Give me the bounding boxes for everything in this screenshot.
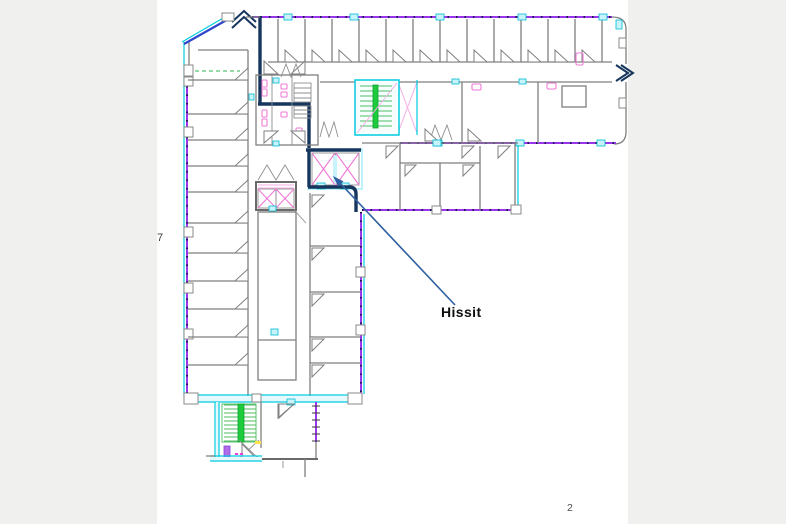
- door-swing-icon: [386, 146, 510, 176]
- shaft-cross: [398, 80, 417, 135]
- page-number: 2: [567, 502, 573, 514]
- fixture-icon: [547, 83, 556, 89]
- annotation-arrow: [333, 176, 455, 305]
- elevator-room: [308, 149, 362, 189]
- stray-mark: 7: [157, 232, 163, 244]
- door-swing-icon: [235, 68, 248, 365]
- door-swing-icon: [242, 444, 254, 456]
- elevator-block-2: [256, 165, 306, 223]
- exit-chevron-icon: [616, 65, 633, 81]
- door-swing-icon: [312, 195, 324, 377]
- entrance-chevron-icon: [232, 11, 256, 28]
- middle-band: [362, 140, 521, 214]
- fixture-icon: [472, 84, 481, 90]
- slide-viewer: { "window": { "background": "#f0f0ef" },…: [0, 0, 786, 524]
- annotation-label: Hissit: [441, 304, 482, 320]
- stair-icon: [222, 404, 256, 442]
- highlight-mark: [255, 441, 261, 444]
- door-swing-icon: [278, 404, 294, 418]
- bottom-stair-exit: [206, 399, 320, 477]
- floor-plan-drawing: [0, 0, 786, 524]
- stair-icon: [355, 80, 399, 135]
